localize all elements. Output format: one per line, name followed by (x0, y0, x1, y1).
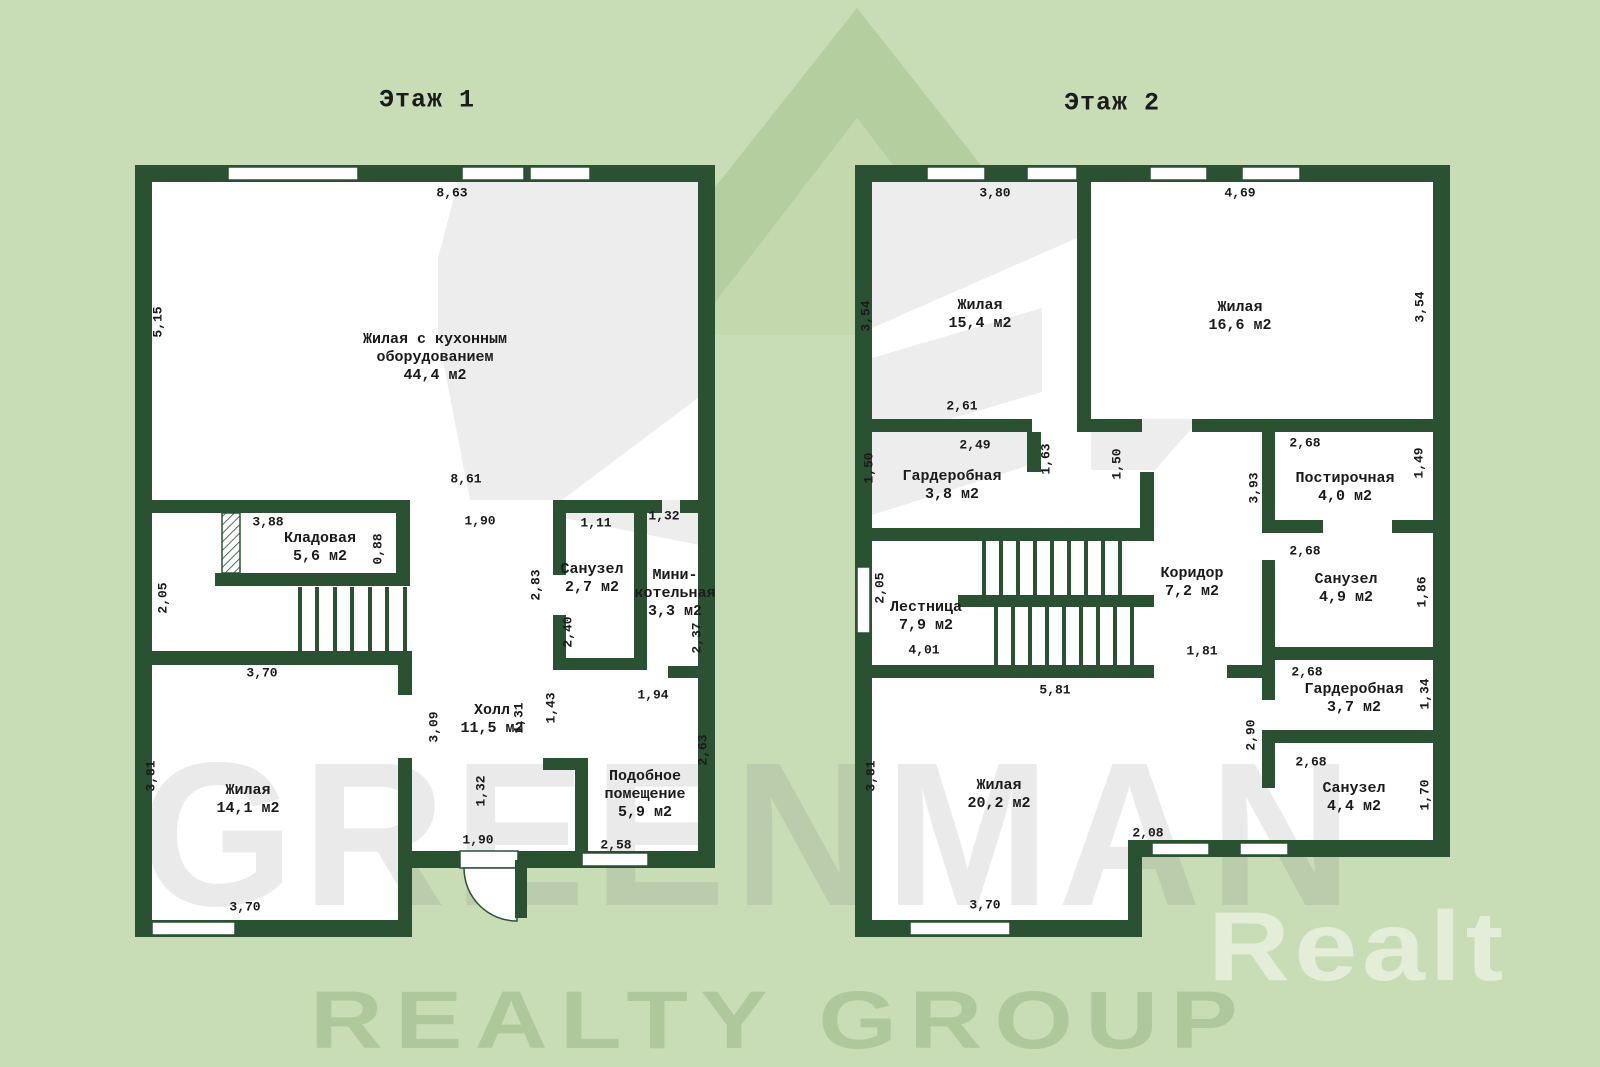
stairs-landing-divider (958, 595, 1154, 607)
realty-group-watermark-text: REALTY GROUP (310, 975, 1250, 1066)
door-leaf (515, 860, 527, 918)
greenman-watermark-text: GREENMAN (140, 720, 1360, 949)
floorplan-page: GREENMAN (0, 0, 1600, 1067)
floorplan-drawing: GREENMAN (0, 0, 1600, 1067)
realt-logo-watermark-text: Realt (1208, 891, 1508, 1001)
door-opening (460, 851, 518, 868)
vent-duct-hatch (222, 513, 240, 573)
